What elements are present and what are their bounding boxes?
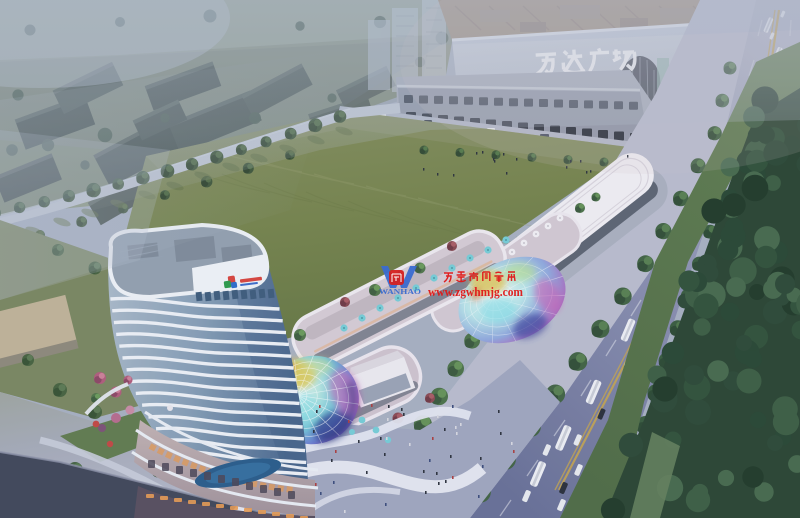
- svg-text:www.zgwhmjg.com: www.zgwhmjg.com: [428, 285, 524, 299]
- svg-text:WANHAO: WANHAO: [379, 287, 421, 296]
